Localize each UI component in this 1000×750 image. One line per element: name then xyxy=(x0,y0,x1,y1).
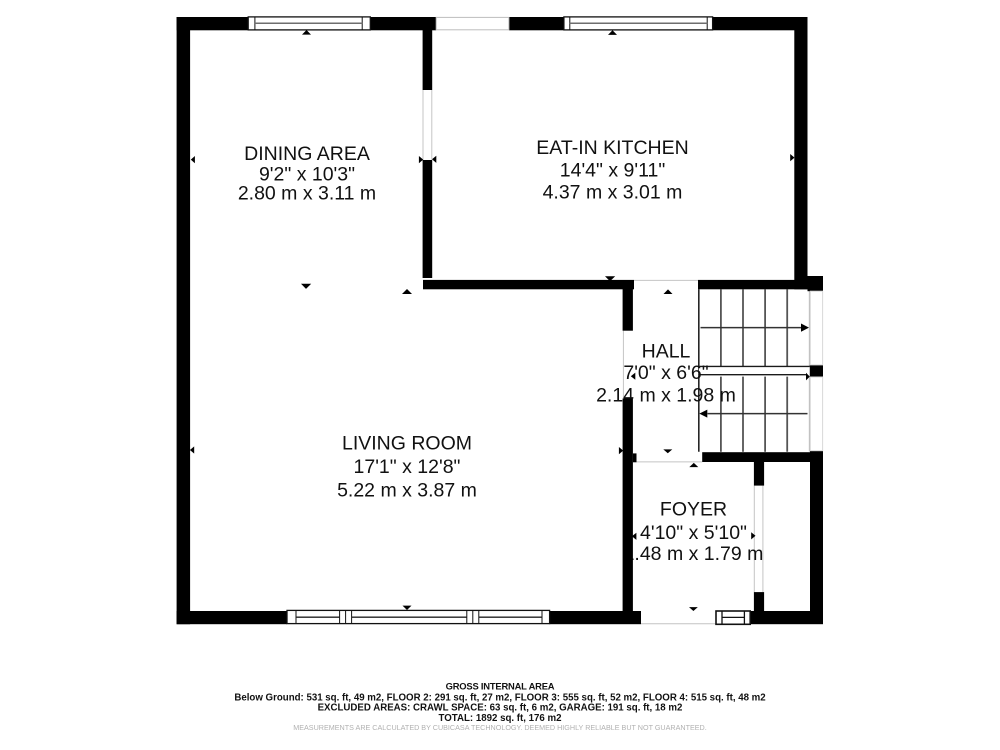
svg-text:2.80 m x 3.11 m: 2.80 m x 3.11 m xyxy=(238,183,376,205)
svg-text:1.48 m x 1.79 m: 1.48 m x 1.79 m xyxy=(624,543,764,565)
svg-text:EAT-IN KITCHEN: EAT-IN KITCHEN xyxy=(536,137,688,159)
svg-text:MEASUREMENTS ARE CALCULATED BY: MEASUREMENTS ARE CALCULATED BY CUBICASA … xyxy=(293,723,707,732)
svg-text:HALL: HALL xyxy=(642,341,691,363)
svg-text:4'10" x 5'10": 4'10" x 5'10" xyxy=(640,522,747,544)
svg-text:14'4" x 9'11": 14'4" x 9'11" xyxy=(560,160,666,182)
svg-text:17'1" x 12'8": 17'1" x 12'8" xyxy=(354,456,461,478)
svg-text:GROSS INTERNAL AREA: GROSS INTERNAL AREA xyxy=(446,680,555,691)
svg-text:5.22 m x 3.87 m: 5.22 m x 3.87 m xyxy=(337,480,477,502)
svg-text:7'0" x 6'6": 7'0" x 6'6" xyxy=(623,362,708,384)
svg-text:DINING AREA: DINING AREA xyxy=(244,143,370,165)
svg-text:FOYER: FOYER xyxy=(660,499,727,521)
svg-text:2.14 m x 1.98 m: 2.14 m x 1.98 m xyxy=(596,385,736,407)
svg-text:LIVING ROOM: LIVING ROOM xyxy=(342,433,472,455)
svg-text:4.37 m x 3.01 m: 4.37 m x 3.01 m xyxy=(543,182,683,204)
